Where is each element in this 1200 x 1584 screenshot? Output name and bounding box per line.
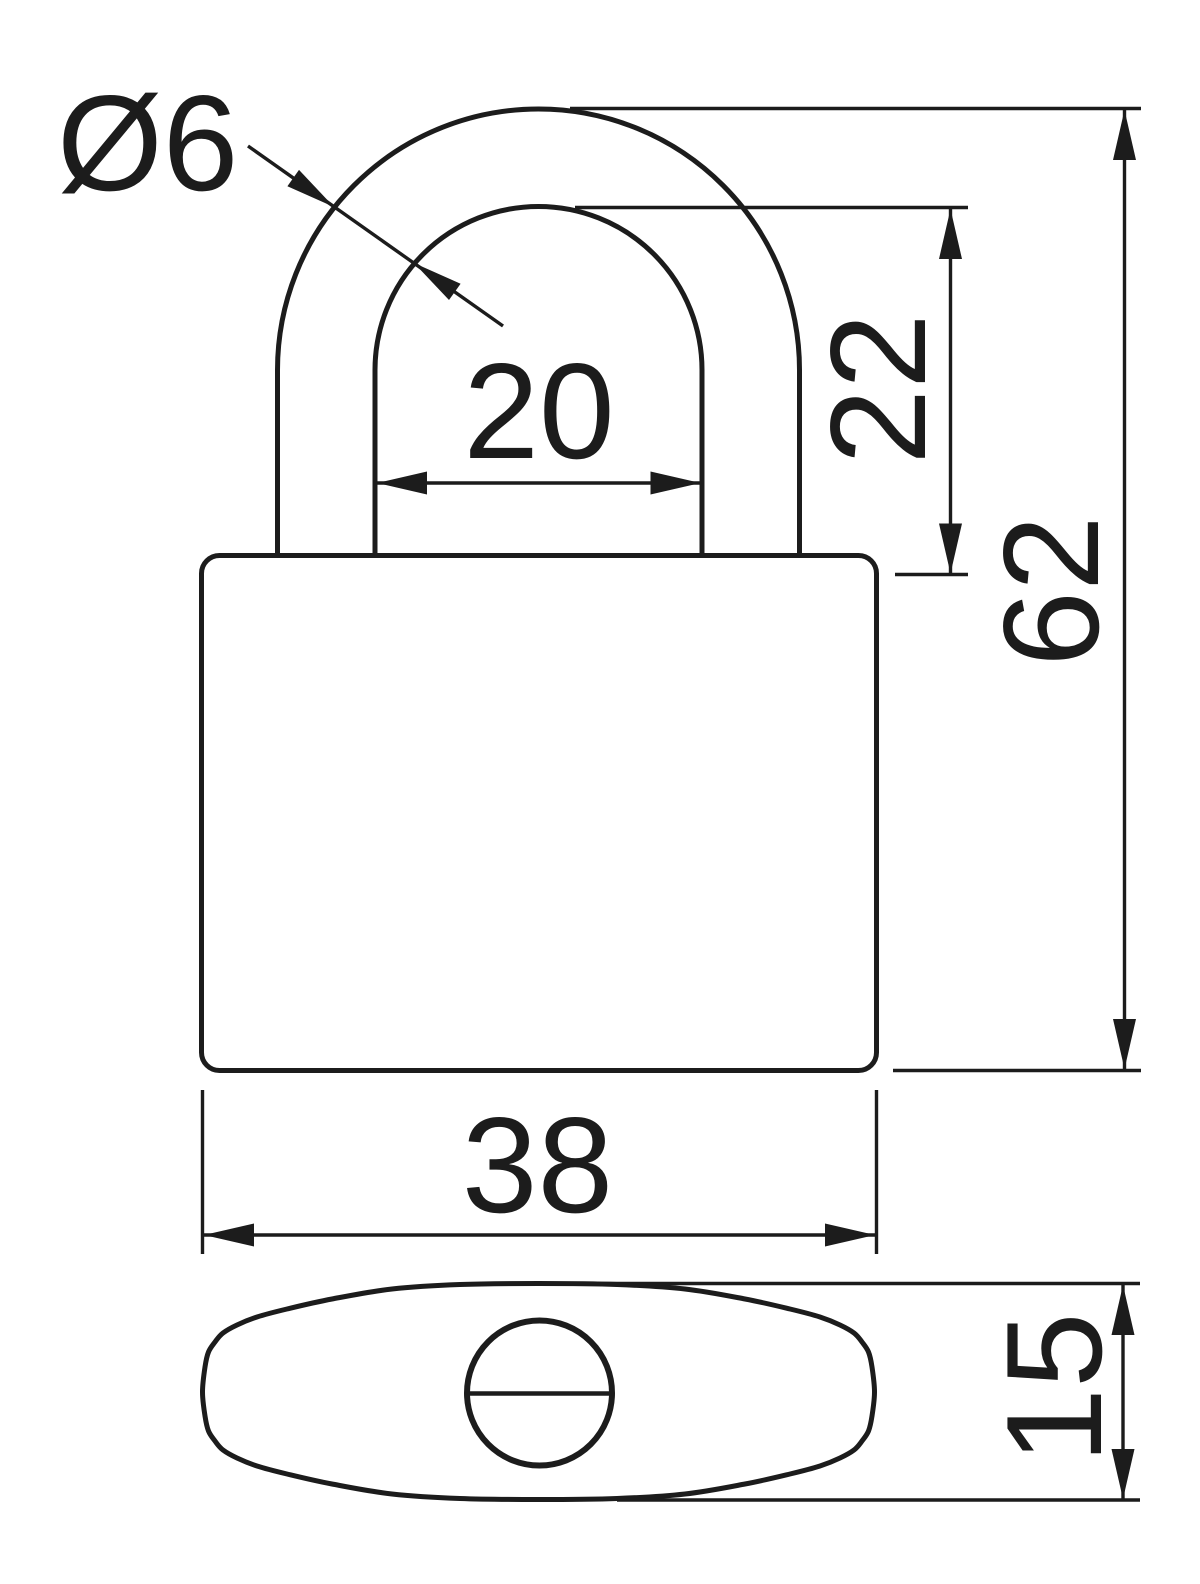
svg-text:20: 20: [463, 335, 614, 487]
svg-text:15: 15: [978, 1312, 1130, 1463]
svg-text:22: 22: [802, 313, 954, 464]
svg-text:38: 38: [462, 1089, 613, 1241]
svg-text:Ø6: Ø6: [57, 67, 238, 219]
svg-text:62: 62: [975, 515, 1127, 666]
